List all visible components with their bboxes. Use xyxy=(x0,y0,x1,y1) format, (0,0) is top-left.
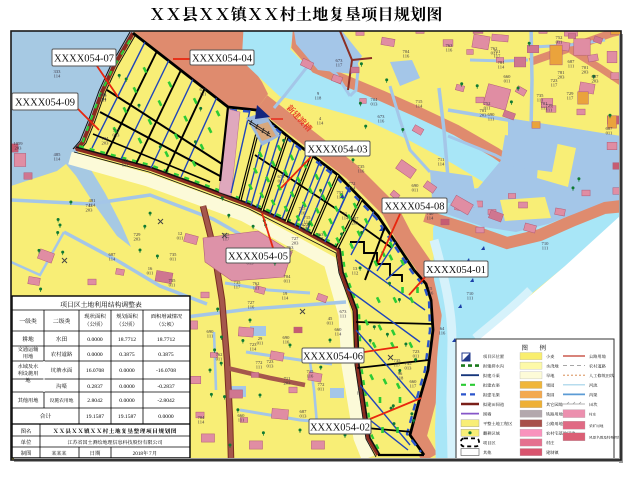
svg-text:701111: 701111 xyxy=(541,101,549,110)
svg-text:XXXX054-03: XXXX054-03 xyxy=(307,145,367,156)
svg-text:687114: 687114 xyxy=(109,252,117,261)
svg-text:XXXX054-04: XXXX054-04 xyxy=(192,54,253,65)
svg-text:-0.2837: -0.2837 xyxy=(157,384,174,390)
svg-text:711013: 711013 xyxy=(113,128,121,137)
svg-text:772114: 772114 xyxy=(349,181,357,190)
svg-text:715116: 715116 xyxy=(299,206,307,215)
svg-text:690111: 690111 xyxy=(207,329,215,338)
svg-text:687203: 687203 xyxy=(592,74,600,83)
svg-text:660117: 660117 xyxy=(410,379,418,388)
svg-text:18.7712: 18.7712 xyxy=(118,337,136,343)
svg-text:704011: 704011 xyxy=(284,274,292,283)
svg-text:18.7712: 18.7712 xyxy=(157,337,175,343)
svg-text:781203: 781203 xyxy=(558,70,566,79)
svg-text:2.8042: 2.8042 xyxy=(87,398,103,404)
svg-text:0.3875: 0.3875 xyxy=(158,352,174,358)
svg-text:660011: 660011 xyxy=(504,74,512,83)
svg-text:711117: 711117 xyxy=(494,49,501,58)
svg-text:19.1587: 19.1587 xyxy=(86,414,104,420)
svg-text:704203: 704203 xyxy=(102,136,110,145)
svg-text:XXXX054-06: XXXX054-06 xyxy=(303,352,363,363)
svg-text:735013: 735013 xyxy=(405,361,413,370)
svg-text:701203: 701203 xyxy=(480,108,488,117)
svg-text:0.2837: 0.2837 xyxy=(87,384,103,390)
svg-text:735111: 735111 xyxy=(537,93,545,102)
svg-text:690011: 690011 xyxy=(412,183,420,192)
svg-text:XXXX054-02: XXXX054-02 xyxy=(310,423,370,434)
svg-text:762011: 762011 xyxy=(216,352,224,361)
svg-text:660111: 660111 xyxy=(238,413,246,422)
svg-text:-2.8042: -2.8042 xyxy=(157,398,174,404)
svg-text:772011: 772011 xyxy=(318,382,326,391)
svg-text:283104: 283104 xyxy=(100,92,108,101)
svg-text:723111: 723111 xyxy=(122,158,130,167)
svg-text:735116: 735116 xyxy=(358,164,366,173)
svg-text:715116: 715116 xyxy=(307,369,315,378)
svg-text:7: 7 xyxy=(149,451,152,457)
svg-text:704114: 704114 xyxy=(198,415,206,424)
svg-text:673111: 673111 xyxy=(340,309,348,318)
svg-text:XXXX054-07: XXXX054-07 xyxy=(54,54,114,65)
svg-text:0.0000: 0.0000 xyxy=(119,398,135,404)
svg-text:485114: 485114 xyxy=(54,152,62,161)
svg-text:XXXX054-01: XXXX054-01 xyxy=(426,265,486,276)
svg-text:735117: 735117 xyxy=(394,358,402,367)
svg-text:711203: 711203 xyxy=(284,376,292,385)
svg-text:752011: 752011 xyxy=(556,35,564,44)
svg-text:715114: 715114 xyxy=(416,99,424,108)
svg-text:673111: 673111 xyxy=(200,87,208,96)
svg-text:727116: 727116 xyxy=(248,300,256,309)
svg-text:762111: 762111 xyxy=(253,281,261,290)
svg-text:701203: 701203 xyxy=(582,65,590,74)
svg-text:19.1587: 19.1587 xyxy=(118,414,136,420)
svg-text:0.0000: 0.0000 xyxy=(87,352,103,358)
svg-text:673117: 673117 xyxy=(336,58,344,67)
svg-text:727203: 727203 xyxy=(292,236,300,245)
svg-text:763117: 763117 xyxy=(317,232,325,241)
svg-text:XXXX054-08: XXXX054-08 xyxy=(384,202,444,213)
svg-text:673011: 673011 xyxy=(278,174,286,183)
svg-text:735011: 735011 xyxy=(170,252,178,261)
svg-text:772111: 772111 xyxy=(256,360,264,369)
svg-text:710111: 710111 xyxy=(542,241,550,250)
svg-text:0.0000: 0.0000 xyxy=(158,414,174,420)
svg-text:687111: 687111 xyxy=(568,59,576,68)
svg-text:687203: 687203 xyxy=(352,216,360,225)
svg-text:XXXX054-05: XXXX054-05 xyxy=(228,252,288,263)
svg-text:0.3875: 0.3875 xyxy=(119,352,135,358)
svg-text:763116: 763116 xyxy=(446,43,454,52)
svg-text:711114: 711114 xyxy=(438,157,445,166)
svg-text:687013: 687013 xyxy=(300,409,308,418)
svg-text:710111: 710111 xyxy=(467,291,475,300)
svg-text:16.0708: 16.0708 xyxy=(86,368,104,374)
svg-text:735117: 735117 xyxy=(234,280,242,289)
svg-text:704013: 704013 xyxy=(371,97,379,106)
svg-text:481114: 481114 xyxy=(89,198,97,207)
svg-text:735011: 735011 xyxy=(169,278,177,287)
svg-text:704116: 704116 xyxy=(403,49,411,58)
svg-text:660114: 660114 xyxy=(335,327,343,336)
svg-text:715114: 715114 xyxy=(304,215,312,224)
svg-text:333114: 333114 xyxy=(54,69,62,78)
svg-text:723013: 723013 xyxy=(267,359,275,368)
svg-text:690111: 690111 xyxy=(488,112,496,121)
svg-text:0.0000: 0.0000 xyxy=(119,384,135,390)
svg-text:-16.0708: -16.0708 xyxy=(156,368,176,374)
svg-text:687011: 687011 xyxy=(606,126,614,135)
svg-text:729117: 729117 xyxy=(567,91,575,100)
svg-text:723011: 723011 xyxy=(413,349,421,358)
svg-text:2018: 2018 xyxy=(133,451,144,457)
svg-text:729203: 729203 xyxy=(134,232,142,241)
svg-text:0.0000: 0.0000 xyxy=(119,368,135,374)
svg-text:723117: 723117 xyxy=(551,78,559,87)
svg-text:XXXX054-09: XXXX054-09 xyxy=(15,98,75,109)
svg-text:690116: 690116 xyxy=(283,335,291,344)
svg-text:0.0000: 0.0000 xyxy=(87,337,103,343)
svg-text:673116: 673116 xyxy=(378,114,386,123)
svg-text:781114: 781114 xyxy=(498,60,506,69)
